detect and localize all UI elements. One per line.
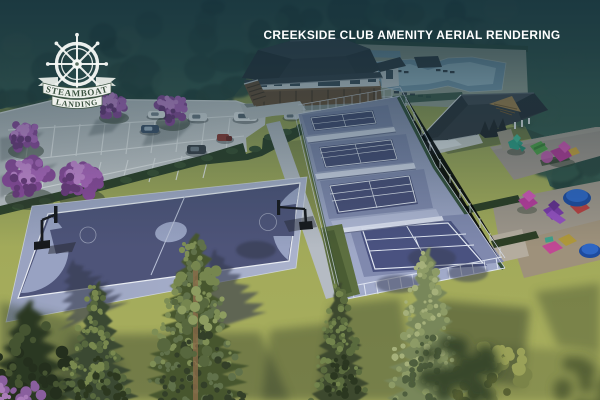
svg-text:CREEKSIDE CLUB AMENITY AERIAL: CREEKSIDE CLUB AMENITY AERIAL RENDERING	[263, 28, 560, 42]
